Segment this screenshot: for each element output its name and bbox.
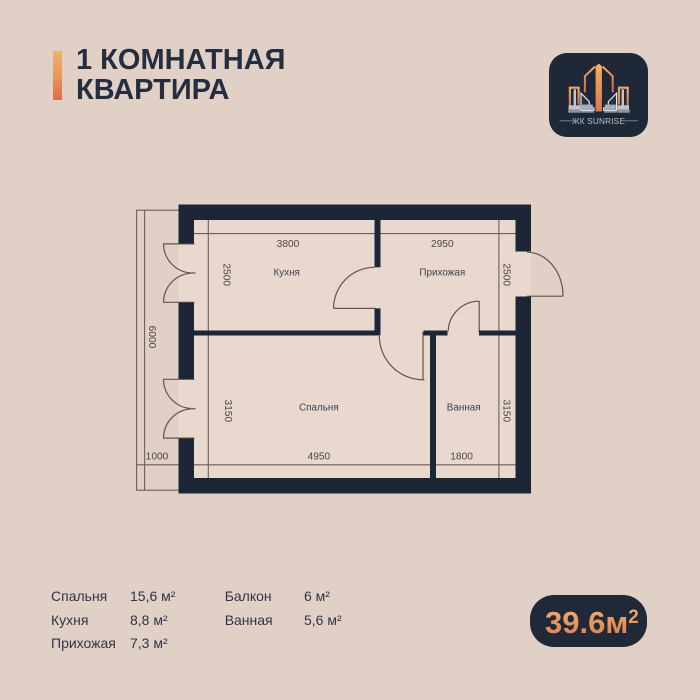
svg-text:39.6м2: 39.6м2: [545, 605, 639, 640]
